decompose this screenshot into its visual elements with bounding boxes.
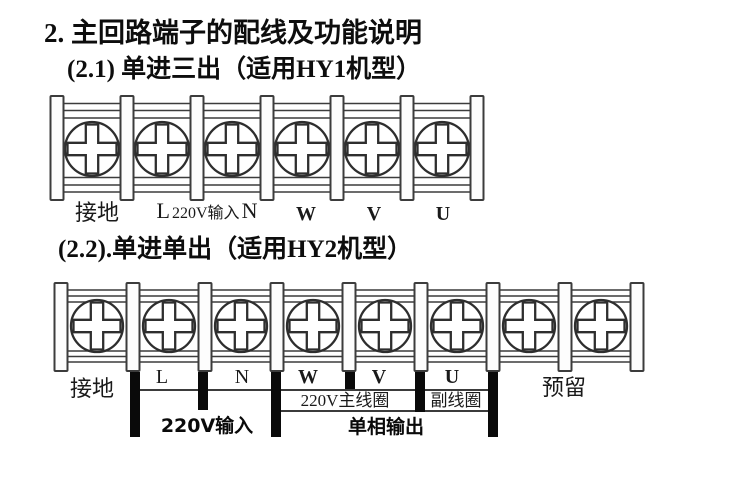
divider-bar: [331, 96, 344, 200]
terminal-block-hy2: [45, 281, 655, 376]
input-220v-label: 220V输入: [161, 417, 253, 436]
divider-bar: [559, 283, 572, 371]
divider-bar: [127, 283, 140, 371]
divider-bar: [121, 96, 134, 200]
divider-bar: [415, 283, 428, 371]
wire-between-w-v: [345, 372, 355, 389]
aux-coil-label: 副线圈: [431, 392, 482, 409]
block1-label-w: W: [296, 204, 316, 224]
block2-label-u: U: [445, 367, 459, 387]
block2-label-n: N: [235, 367, 249, 387]
section-2-2-heading: (2.2).单进单出（适用HY2机型）: [58, 236, 412, 264]
divider-bar: [343, 283, 356, 371]
divider-bar: [51, 96, 64, 200]
divider-bar: [401, 96, 414, 200]
terminal-block-hy1: [40, 94, 500, 204]
divider-bar: [271, 283, 284, 371]
block2-label-l: L: [156, 367, 168, 387]
divider-bar: [199, 283, 212, 371]
block2-label-ground: 接地: [70, 378, 114, 400]
wire-between-v-u: [415, 372, 425, 412]
block2-label-w: W: [298, 367, 318, 387]
single-phase-output-label: 单相输出: [348, 418, 424, 437]
main-coil-label: 220V主线圈: [301, 392, 390, 409]
page-title: 2. 主回路端子的配线及功能说明: [44, 19, 422, 49]
block1-label-input-group: L 220V输入 N: [157, 200, 258, 222]
divider-bar: [261, 96, 274, 200]
divider-bar: [471, 96, 484, 200]
block1-label-l: L: [157, 200, 170, 222]
wire-right-of-n: [271, 372, 281, 437]
manual-page: 2. 主回路端子的配线及功能说明 (2.1) 单进三出（适用HY1机型） (2.…: [0, 0, 750, 480]
divider-bar: [487, 283, 500, 371]
wire-between-l-n: [198, 372, 208, 410]
block2-label-reserved: 预留: [542, 377, 586, 399]
block2-label-v: V: [372, 367, 386, 387]
section-2-1-heading: (2.1) 单进三出（适用HY1机型）: [67, 56, 421, 84]
block1-label-220v-input: 220V输入: [172, 206, 240, 222]
block1-label-v: V: [367, 204, 381, 224]
wire-left-of-l: [130, 372, 140, 437]
divider-bar: [55, 283, 68, 371]
divider-bar: [631, 283, 644, 371]
wire-right-of-u: [488, 372, 498, 437]
block1-label-n: N: [242, 200, 258, 222]
block1-label-ground: 接地: [75, 202, 119, 224]
block1-label-u: U: [436, 204, 450, 224]
divider-bar: [191, 96, 204, 200]
